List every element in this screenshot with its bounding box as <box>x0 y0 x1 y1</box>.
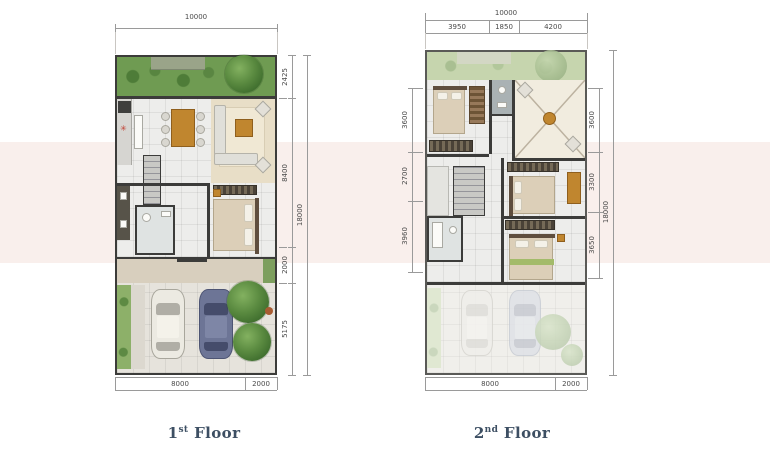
bed-headboard <box>433 86 467 90</box>
ghost-fade-overlay <box>427 285 585 373</box>
f1-tick <box>288 283 296 284</box>
f2-ext-line <box>588 278 596 279</box>
f2-dim-top-line <box>425 33 587 34</box>
f2-dim-bottom-label: 8000 <box>458 380 522 388</box>
floor2-title-number: 2 <box>474 424 485 442</box>
f1-tick <box>288 247 296 248</box>
car-rear-window <box>204 342 228 351</box>
f2-ext-line <box>415 88 423 89</box>
f2-tick <box>595 278 603 279</box>
car-roof <box>157 316 179 338</box>
f2-dim-right-total-line <box>613 50 614 375</box>
pillow <box>534 240 548 248</box>
f1-tick <box>303 375 311 376</box>
bed <box>433 86 465 134</box>
f2-tick <box>609 50 617 51</box>
wardrobe <box>507 162 559 172</box>
f1-tick <box>115 24 116 32</box>
tree <box>233 323 271 361</box>
wall <box>501 158 504 282</box>
f1-tick <box>288 55 296 56</box>
wall <box>427 154 489 157</box>
f2-ext-line <box>425 33 426 49</box>
f2-tick <box>595 88 603 89</box>
car-windshield <box>156 303 180 315</box>
f1-dim-bottom-label: 8000 <box>148 380 212 388</box>
f1-dim-top-line <box>115 28 277 29</box>
garden-paving <box>151 57 205 70</box>
pantry-counter <box>117 186 130 240</box>
f1-dim-bottom-line <box>115 390 277 391</box>
terrace <box>117 257 275 283</box>
f1-dim-right-chain <box>292 55 293 375</box>
f1-dim-right-label: 5175 <box>281 297 289 361</box>
appliance <box>120 220 127 228</box>
wardrobe <box>469 86 485 124</box>
f2-dim-right-label: 3650 <box>588 213 596 277</box>
bed <box>509 176 555 214</box>
f1-tick <box>115 377 116 390</box>
floor2-title: 2nd Floor <box>474 424 550 442</box>
pillow <box>437 92 448 100</box>
wall <box>117 183 207 186</box>
kitchen-island <box>134 115 143 149</box>
dining-chair <box>196 138 205 147</box>
planter <box>263 259 275 285</box>
f2-tick <box>609 375 617 376</box>
page: 10000 2425 8400 2000 5175 18000 8000 200… <box>0 0 770 458</box>
f2-dim-left-label: 3960 <box>401 204 409 268</box>
f1-dim-right-total-label: 18000 <box>296 183 304 247</box>
bathtub <box>432 222 443 248</box>
bed <box>509 234 553 280</box>
closet <box>427 166 449 216</box>
nightstand <box>557 234 565 242</box>
bed <box>213 199 259 251</box>
pillow <box>244 228 253 246</box>
walkway <box>131 285 145 369</box>
car-roof <box>205 316 227 338</box>
dining-chair <box>161 125 170 134</box>
dining-table <box>171 109 195 147</box>
bed-headboard <box>509 234 555 238</box>
bed-headboard <box>255 198 259 254</box>
f2-ext-line <box>415 152 423 153</box>
bed-headboard <box>509 176 513 216</box>
desk <box>567 172 581 204</box>
car-windshield <box>204 303 228 315</box>
dining-chair <box>196 112 205 121</box>
wall <box>501 216 585 219</box>
bed-runner <box>510 259 554 265</box>
f1-dim-right-label: 2000 <box>281 233 289 297</box>
pillow <box>514 198 522 211</box>
f1-tick <box>288 98 296 99</box>
f2-dim-right-label: 3600 <box>588 88 596 152</box>
stairs <box>453 166 485 216</box>
wardrobe <box>505 220 555 230</box>
wall <box>207 183 210 257</box>
sink <box>497 102 507 108</box>
f2-ext-line <box>587 33 588 49</box>
floor2-plan <box>425 50 587 375</box>
f1-ext-line <box>115 30 116 54</box>
sink-marker: ✳ <box>120 125 127 133</box>
bathroom <box>492 80 512 116</box>
f2-ext-line <box>415 272 423 273</box>
side-table <box>543 112 556 125</box>
floor1-title: 1st Floor <box>168 424 241 442</box>
tree <box>225 55 263 93</box>
f1-dim-right-label: 8400 <box>281 141 289 205</box>
garden-paving-faded <box>457 52 511 64</box>
pillow <box>514 181 522 194</box>
car-rear-window <box>156 342 180 351</box>
f2-dim-top-line <box>425 20 587 21</box>
tree-faded <box>535 50 567 82</box>
floor1-title-ordinal: st <box>178 425 188 435</box>
f1-tick <box>303 55 311 56</box>
f2-tick <box>595 152 603 153</box>
toilet <box>449 226 457 234</box>
plant-pot <box>265 307 273 315</box>
f2-dim-left-label: 3600 <box>401 88 409 152</box>
coffee-table <box>235 119 253 137</box>
floor1-plan: ✳ <box>115 55 277 375</box>
f1-dim-right-label: 2425 <box>281 45 289 109</box>
nightstand <box>213 189 221 197</box>
bathroom <box>427 216 463 262</box>
side-grass <box>117 285 131 369</box>
stairs <box>143 155 161 205</box>
f1-tick <box>288 375 296 376</box>
f2-dim-top-total-label: 10000 <box>474 9 538 17</box>
f2-ext-line <box>415 201 423 202</box>
f1-tick <box>277 24 278 32</box>
pillow <box>515 240 529 248</box>
f1-dim-top-label: 10000 <box>164 13 228 21</box>
pillow <box>244 204 253 222</box>
dining-chair <box>161 138 170 147</box>
f2-tick <box>587 13 588 33</box>
wardrobe <box>429 140 473 152</box>
floor2-title-ordinal: nd <box>485 425 499 435</box>
void-room <box>515 80 585 158</box>
f2-dim-bottom-line <box>425 377 587 378</box>
f2-dim-left-chain <box>412 88 413 272</box>
wall <box>512 80 515 158</box>
stove <box>118 101 131 113</box>
f2-dim-right-chain <box>599 88 600 278</box>
f2-dim-bottom-line <box>425 390 587 391</box>
sink <box>161 211 171 217</box>
entry-door <box>177 259 207 262</box>
f2-dim-right-total-label: 18000 <box>602 180 610 244</box>
sofa <box>214 105 226 155</box>
appliance <box>120 192 127 200</box>
tree <box>227 281 269 323</box>
wall <box>512 158 585 161</box>
toilet <box>498 86 506 94</box>
f1-dim-right-total-line <box>307 55 308 375</box>
floor2-title-word: Floor <box>504 424 550 442</box>
bathroom <box>135 205 175 255</box>
toilet <box>142 213 151 222</box>
f2-dim-bottom-label: 2000 <box>539 380 603 388</box>
car-white <box>151 289 185 359</box>
f2-tick <box>425 377 426 390</box>
f2-dim-left-label: 2700 <box>401 144 409 208</box>
pillow <box>451 92 462 100</box>
sofa <box>214 153 258 165</box>
f2-dim-top-label: 4200 <box>521 23 585 31</box>
f1-dim-bottom-line <box>115 377 277 378</box>
f1-dim-bottom-label: 2000 <box>229 380 293 388</box>
f2-dim-right-label: 3300 <box>588 150 596 214</box>
f1-ext-line <box>277 30 278 54</box>
dining-chair <box>161 112 170 121</box>
dining-chair <box>196 125 205 134</box>
floor1-title-number: 1 <box>168 424 179 442</box>
floor1-title-word: Floor <box>194 424 240 442</box>
